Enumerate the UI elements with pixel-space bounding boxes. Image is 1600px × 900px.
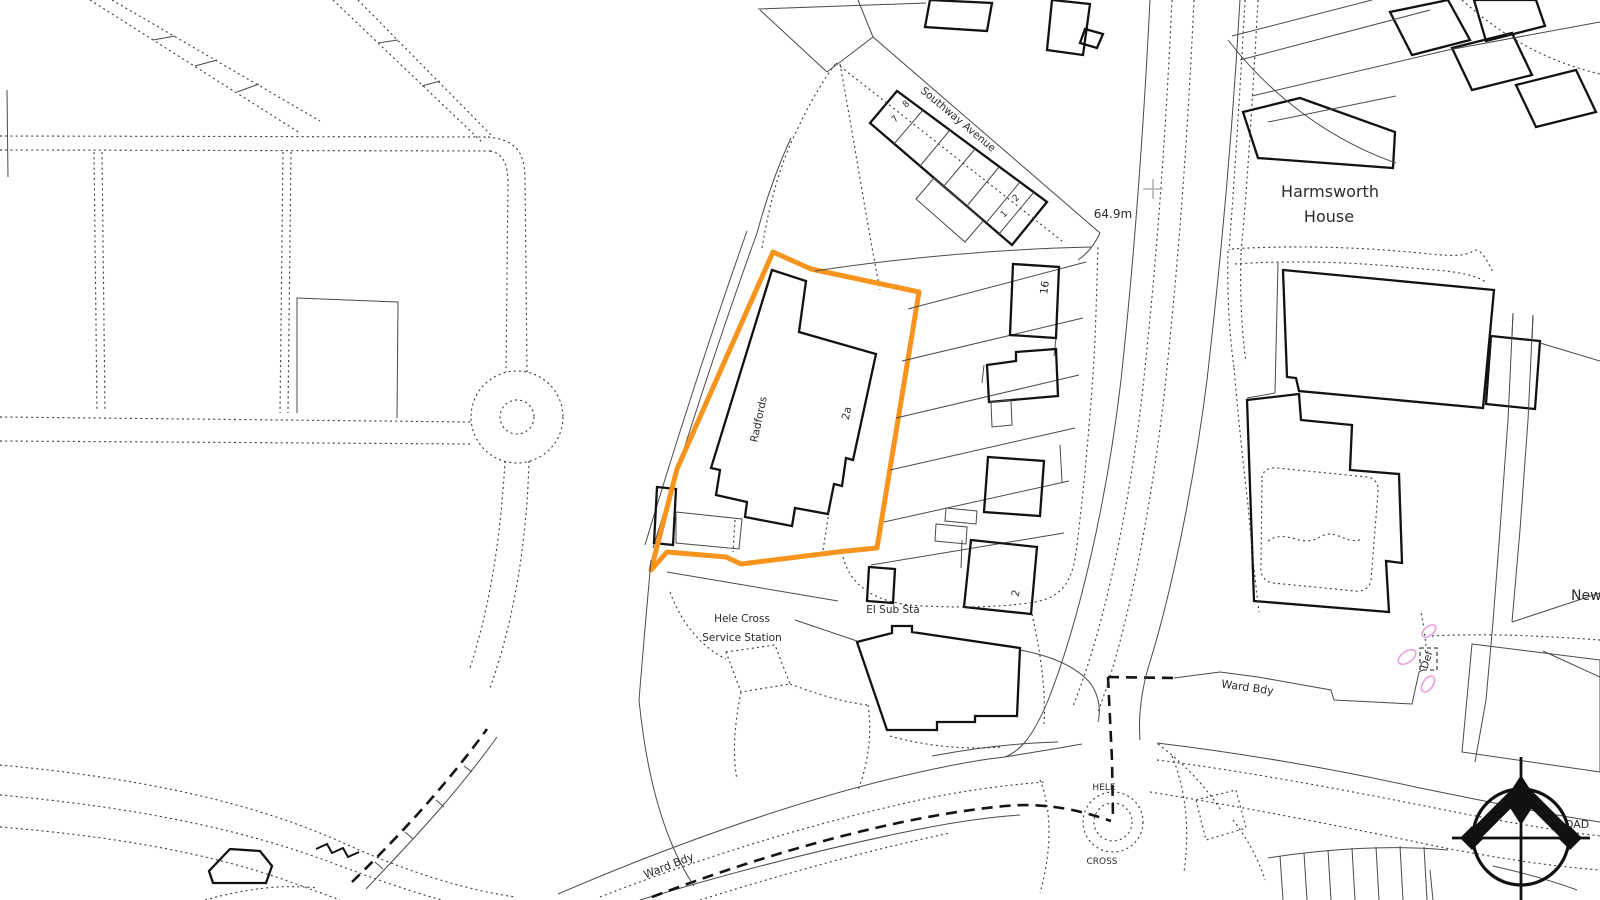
main-road [1005,0,1258,757]
top-right-terraces [1228,0,1600,163]
roundabout [470,371,563,688]
def-label: Def [1419,649,1436,670]
bottom-road [558,744,1111,900]
building-no-2-label: 2 [1009,589,1022,598]
application-site [645,138,919,570]
grid-cross-mark [1143,179,1163,199]
harmsworth-house-label-2: House [1304,207,1354,226]
cross-label: CROSS [1086,857,1117,867]
harmsworth-house-label-1: Harmsworth [1281,182,1379,201]
new-road-label: New [1571,588,1600,604]
bottom-left-paths [0,729,515,900]
substation-label: El Sub Sta [866,604,919,616]
top-buildings [925,0,1103,55]
spot-height-label: 64.9m [1094,207,1132,221]
hele-label: HELE [1092,783,1115,793]
hele-cross-junction [1040,677,1265,893]
site-number-2a: 2a [840,406,854,421]
harmsworth-house-area [1228,98,1600,612]
ward-bdy-east-label: Ward Bdy [1220,677,1275,697]
service-station-label-1: Hele Cross [714,613,770,625]
terrace-no-7: 7 [890,114,901,125]
small-building [209,849,272,883]
boundary-marker-2 [1420,622,1438,639]
north-compass-icon [1452,757,1590,900]
boundary-marker-3 [1419,674,1438,694]
boundary-marker-1 [1396,647,1419,667]
terrace-no-1: 1 [999,209,1010,220]
map-canvas: Southway Avenue 8 7 2 1 64.9m Harmsworth… [0,0,1600,900]
building-no-16-label: 16 [1038,280,1052,295]
site-boundary-outline [651,252,919,570]
service-station-label-2: Service Station [702,632,781,644]
radfords-building [711,270,876,526]
ward-boundary-north-branch [1108,677,1113,818]
service-station-building [857,626,1020,730]
harmsworth-south-wing [1247,394,1402,612]
parcel-strips [815,245,1098,724]
harmsworth-house-building [1283,270,1494,408]
radfords-label: Radfords [748,395,769,443]
left-field-boundaries [0,0,527,444]
street-name-label: Southway Avenue [918,85,998,155]
right-roads [1150,313,1600,900]
substation-building [867,567,895,603]
map-labels: Southway Avenue 8 7 2 1 64.9m Harmsworth… [642,85,1600,881]
